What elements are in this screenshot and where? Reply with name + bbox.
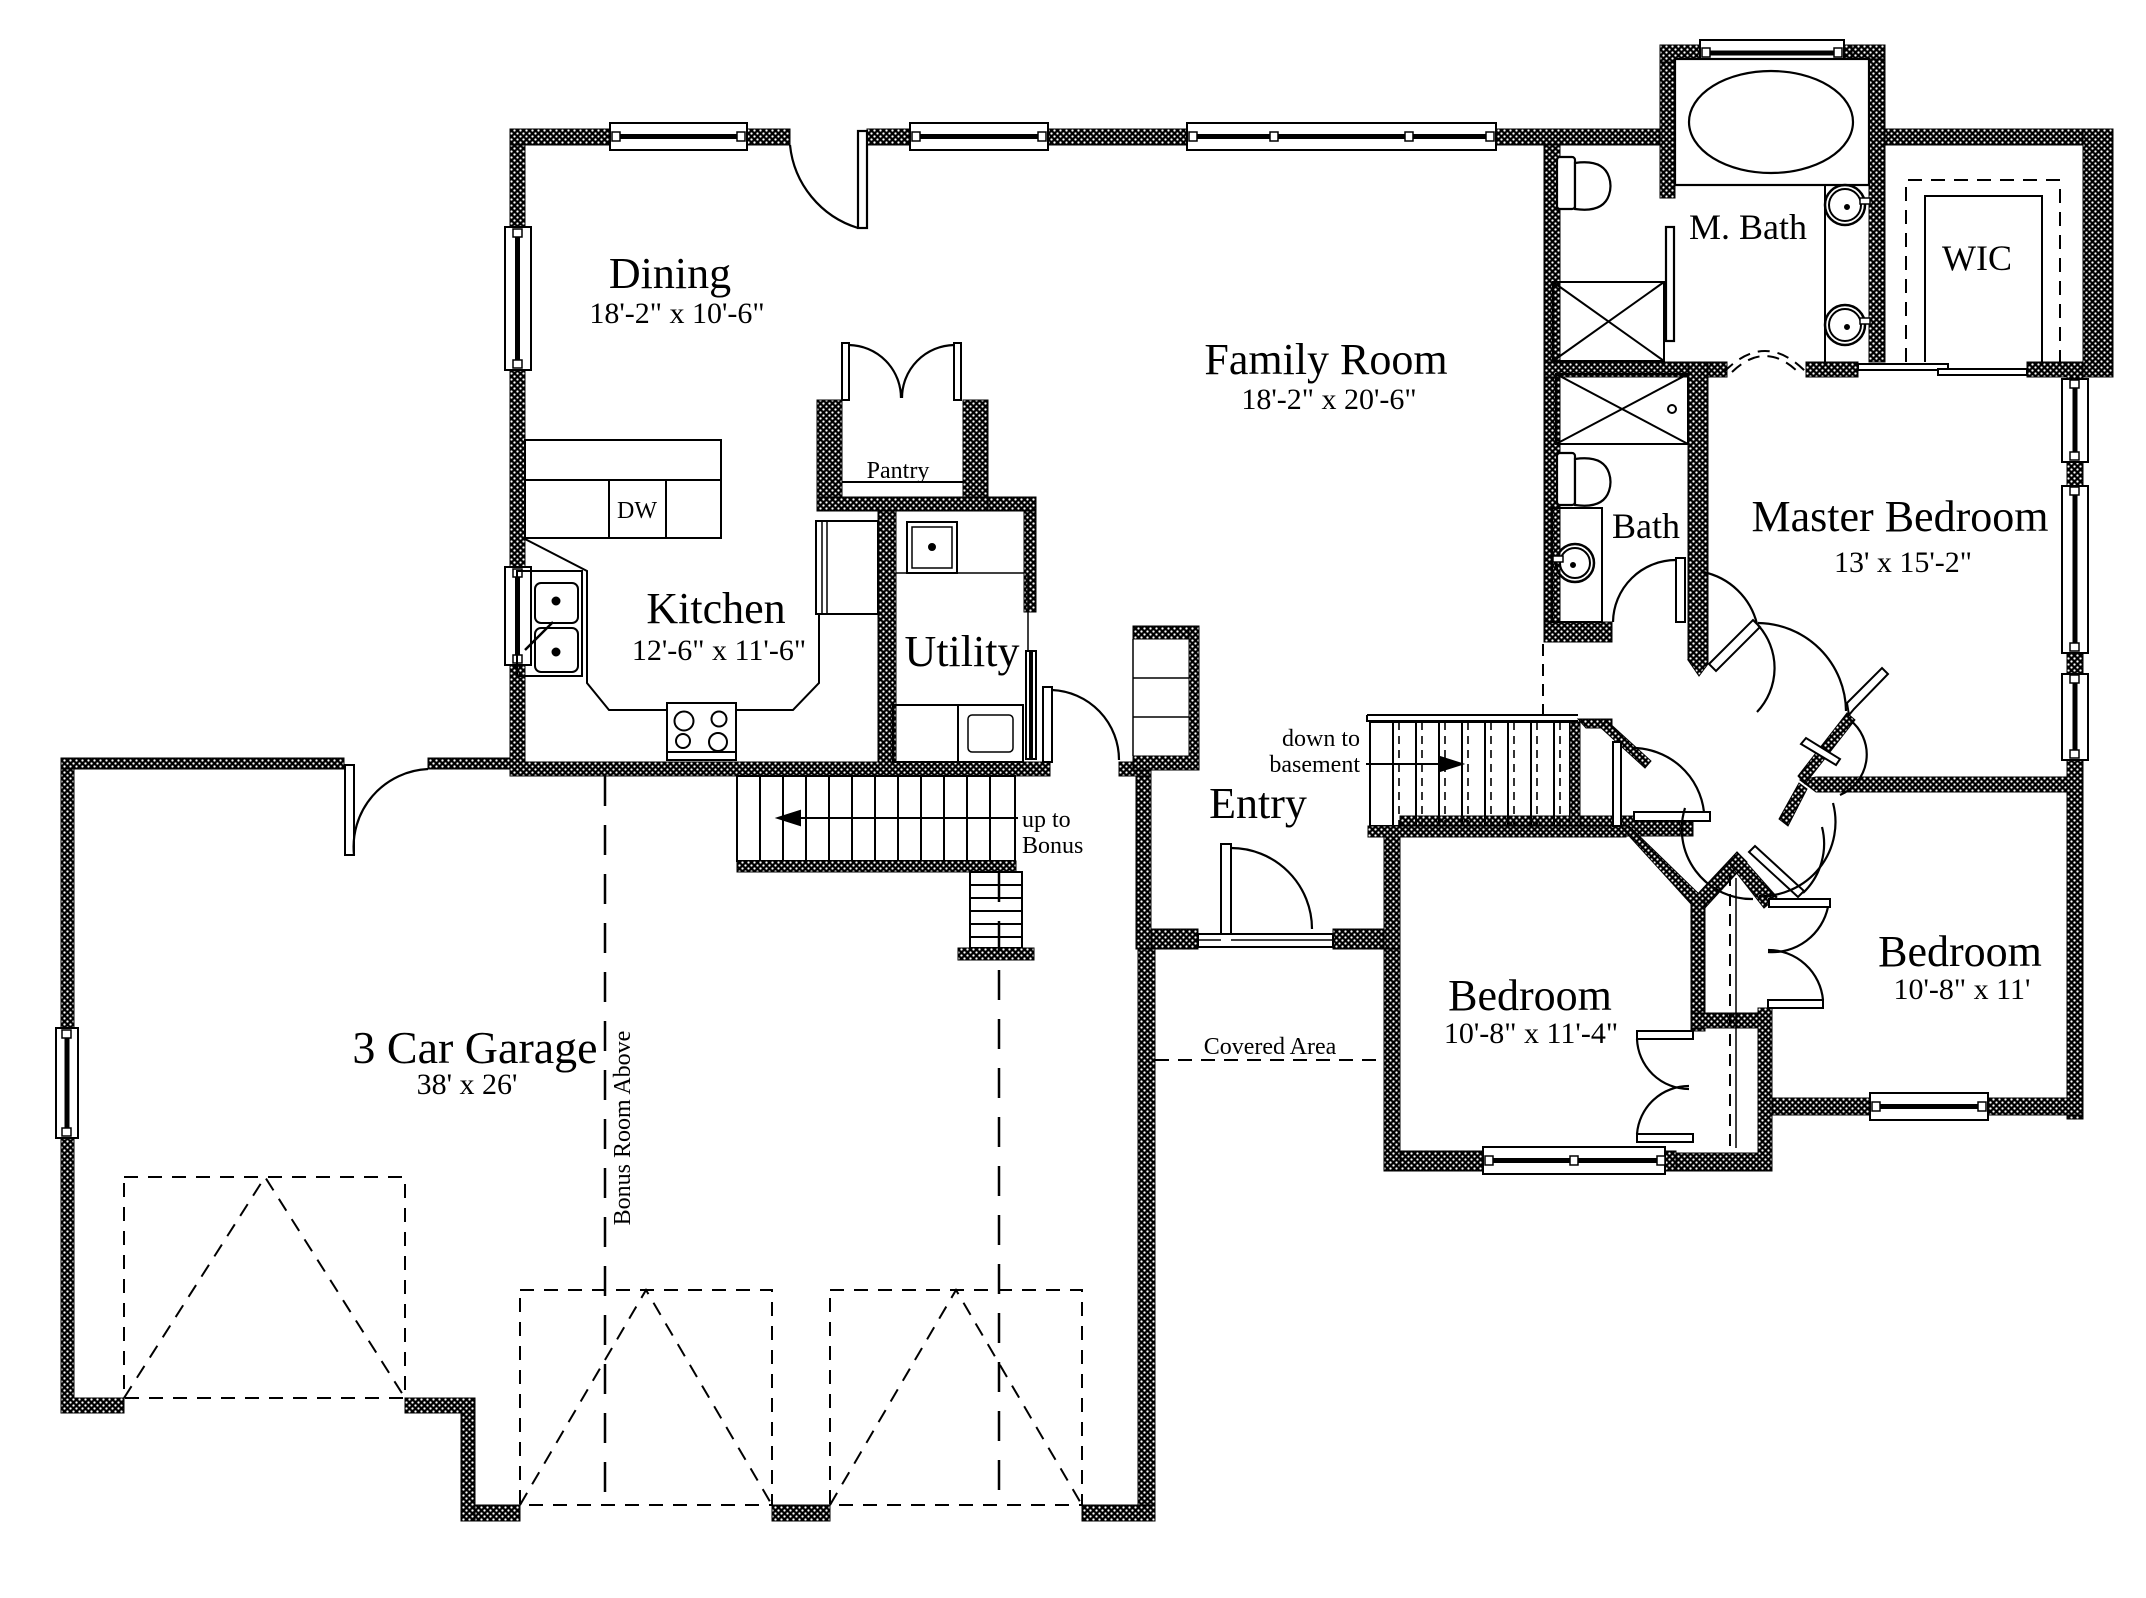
svg-text:10'-8" x 11': 10'-8" x 11' (1894, 973, 2031, 1006)
svg-text:Family Room: Family Room (1204, 335, 1447, 384)
svg-text:38' x 26': 38' x 26' (417, 1068, 518, 1101)
svg-text:up to: up to (1022, 807, 1071, 833)
svg-text:M. Bath: M. Bath (1689, 207, 1807, 247)
svg-text:WIC: WIC (1942, 238, 2012, 278)
svg-text:13' x 15'-2": 13' x 15'-2" (1834, 546, 1972, 579)
svg-text:Pantry: Pantry (867, 458, 930, 484)
svg-text:Covered Area: Covered Area (1204, 1034, 1337, 1060)
svg-text:DW: DW (617, 498, 657, 524)
svg-text:Kitchen: Kitchen (646, 584, 785, 633)
svg-text:Bedroom: Bedroom (1878, 927, 2042, 976)
svg-text:12'-6" x 11'-6": 12'-6" x 11'-6" (632, 634, 806, 667)
svg-text:Bath: Bath (1612, 506, 1680, 546)
svg-text:Bedroom: Bedroom (1448, 971, 1612, 1020)
svg-text:Master Bedroom: Master Bedroom (1752, 492, 2049, 541)
svg-text:down to: down to (1282, 726, 1360, 752)
svg-text:Bonus Room Above: Bonus Room Above (610, 1031, 636, 1226)
svg-text:10'-8" x 11'-4": 10'-8" x 11'-4" (1444, 1017, 1618, 1050)
svg-text:3 Car Garage: 3 Car Garage (352, 1022, 597, 1073)
svg-text:Bonus: Bonus (1022, 833, 1083, 859)
svg-text:Entry: Entry (1209, 779, 1307, 828)
svg-text:18'-2" x 20'-6": 18'-2" x 20'-6" (1241, 383, 1416, 416)
svg-text:Dining: Dining (609, 249, 731, 298)
svg-text:18'-2" x 10'-6": 18'-2" x 10'-6" (589, 297, 764, 330)
svg-text:Utility: Utility (905, 627, 1020, 676)
svg-text:basement: basement (1269, 752, 1360, 778)
